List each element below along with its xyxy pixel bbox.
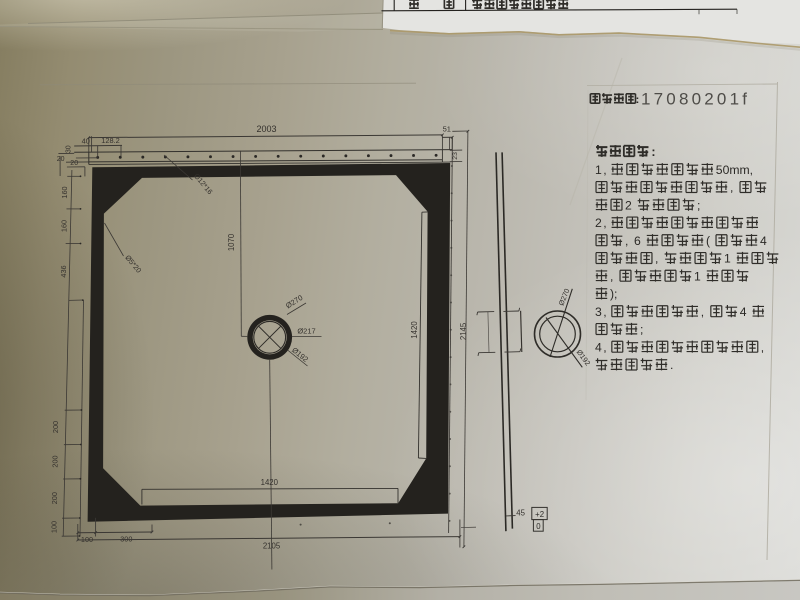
svg-text:128.2: 128.2 — [101, 136, 120, 145]
svg-text:200: 200 — [51, 421, 60, 433]
svg-text:,: , — [603, 216, 606, 230]
svg-text:Ø5*20: Ø5*20 — [123, 253, 143, 274]
svg-text:100: 100 — [81, 535, 93, 544]
svg-text:160: 160 — [60, 186, 69, 198]
svg-text:1: 1 — [694, 269, 701, 283]
svg-text:Ø217: Ø217 — [297, 327, 315, 336]
svg-text:1420: 1420 — [410, 321, 419, 339]
svg-text:,: , — [610, 269, 613, 283]
svg-text:1: 1 — [595, 163, 602, 177]
svg-text:,: , — [701, 305, 704, 319]
svg-text:,: , — [603, 163, 606, 177]
svg-text:4: 4 — [760, 234, 767, 248]
svg-text:2145: 2145 — [459, 322, 468, 340]
svg-text:20: 20 — [57, 156, 65, 163]
svg-text:1070: 1070 — [227, 233, 236, 251]
svg-text:160: 160 — [59, 220, 68, 232]
svg-text:.: . — [670, 358, 673, 372]
svg-text:);: ); — [610, 287, 617, 301]
svg-text:4: 4 — [595, 340, 602, 354]
svg-text:Ø192: Ø192 — [575, 348, 593, 368]
svg-text:;: ; — [697, 198, 700, 212]
svg-text:4: 4 — [740, 305, 747, 319]
svg-text:Ø270: Ø270 — [284, 293, 304, 310]
svg-text:(: ( — [706, 234, 710, 248]
svg-text:,: , — [625, 234, 628, 248]
svg-text:200: 200 — [50, 492, 59, 504]
svg-text:2: 2 — [595, 216, 602, 230]
svg-text:2: 2 — [625, 198, 632, 212]
svg-text:,: , — [603, 305, 606, 319]
svg-text::: : — [651, 145, 655, 159]
svg-text:3: 3 — [595, 305, 602, 319]
svg-text:,: , — [603, 340, 606, 354]
svg-text:20: 20 — [70, 160, 78, 167]
svg-text:45: 45 — [516, 508, 525, 517]
svg-text:40: 40 — [82, 137, 90, 146]
svg-text:Ø192: Ø192 — [290, 345, 310, 364]
svg-text:436: 436 — [59, 265, 68, 277]
svg-text:2003: 2003 — [256, 124, 276, 134]
svg-text:,: , — [655, 252, 658, 266]
svg-text:23: 23 — [452, 152, 459, 160]
svg-text:0: 0 — [536, 522, 541, 531]
svg-text:200: 200 — [50, 455, 59, 467]
svg-text:50mm,: 50mm, — [716, 163, 753, 177]
svg-text:1: 1 — [724, 252, 731, 266]
svg-text:;: ; — [640, 323, 643, 337]
svg-text:,: , — [761, 340, 764, 354]
svg-text:6: 6 — [634, 234, 641, 248]
svg-text:100: 100 — [50, 521, 59, 533]
svg-text:,: , — [730, 181, 733, 195]
svg-text:51: 51 — [443, 124, 451, 133]
svg-text:17080201f: 17080201f — [641, 89, 750, 108]
svg-text:1420: 1420 — [261, 478, 279, 487]
svg-text:+2: +2 — [535, 510, 544, 519]
svg-text::: : — [636, 94, 640, 106]
svg-text:300: 300 — [120, 534, 132, 543]
svg-text:30: 30 — [65, 145, 72, 153]
